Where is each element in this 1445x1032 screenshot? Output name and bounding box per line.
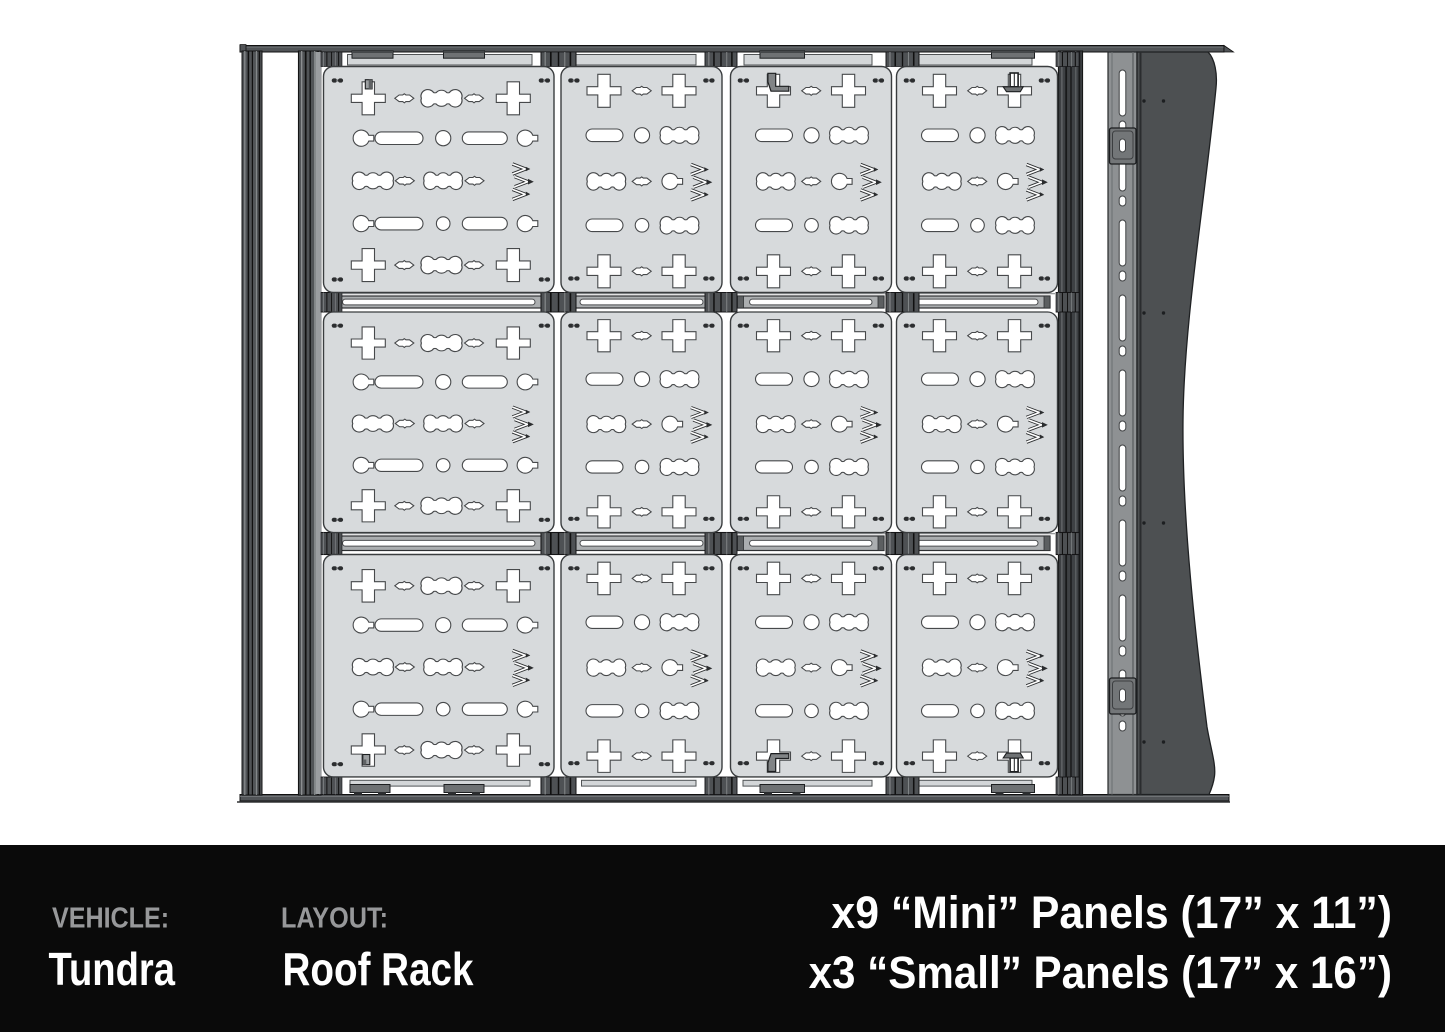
svg-text:x9 “Mini” Panels (17” x 11”): x9 “Mini” Panels (17” x 11”) [831,888,1392,938]
svg-text:Tundra: Tundra [48,944,175,995]
svg-text:Roof Rack: Roof Rack [283,944,474,995]
svg-text:LAYOUT:: LAYOUT: [281,901,388,934]
svg-text:x3 “Small” Panels (17” x 16”): x3 “Small” Panels (17” x 16”) [809,949,1392,999]
svg-text:VEHICLE:: VEHICLE: [52,901,169,934]
